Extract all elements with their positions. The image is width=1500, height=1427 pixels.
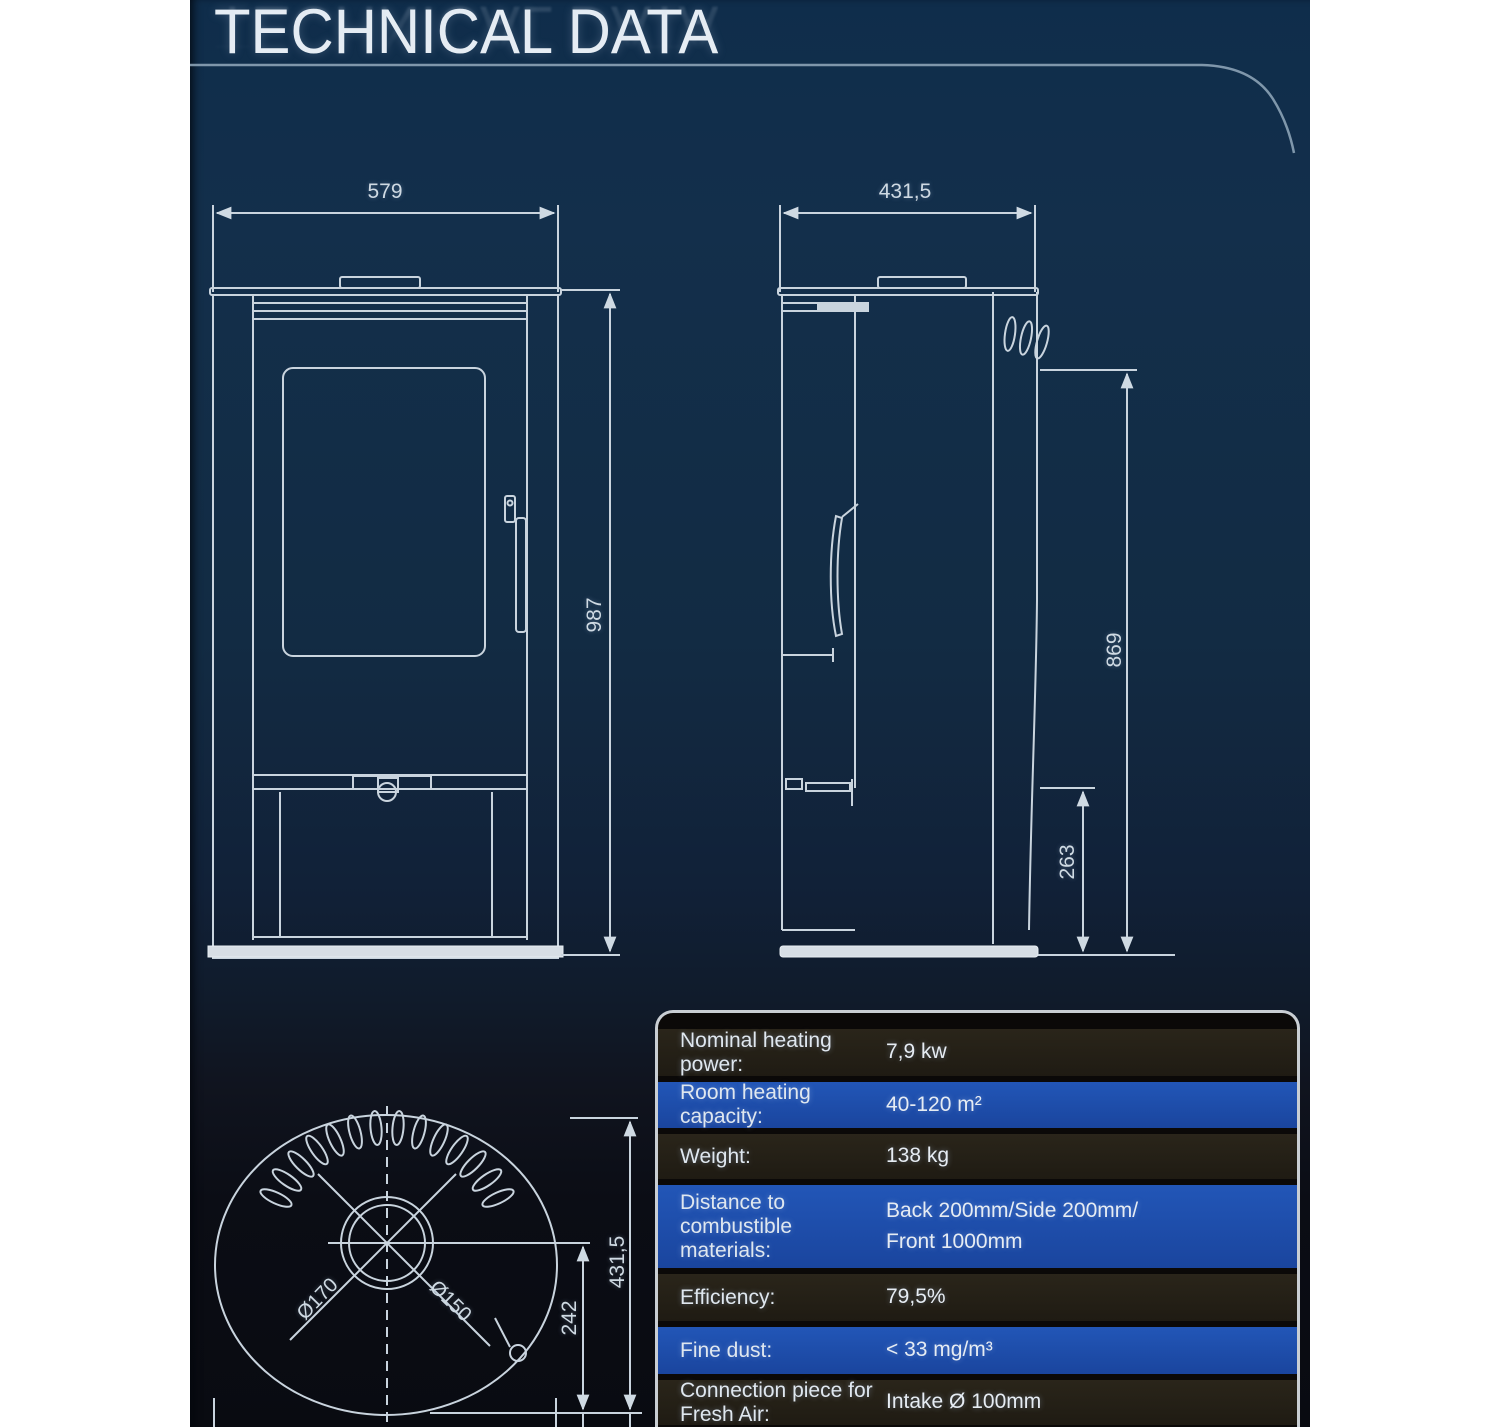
spec-value: < 33 mg/m³ <box>886 1335 1297 1365</box>
side-view <box>778 205 1175 957</box>
spec-label: Connection piece for Fresh Air: <box>658 1379 886 1427</box>
spec-label: Weight: <box>658 1145 886 1169</box>
dim-side-rear-height-label: 869 <box>1103 615 1127 685</box>
dim-front-width-label: 579 <box>320 180 450 204</box>
spec-value: Back 200mm/Side 200mm/ Front 1000mm <box>886 1196 1297 1257</box>
spec-label: Nominal heating power: <box>658 1029 886 1077</box>
header-underline <box>190 65 1294 153</box>
table-row: Connection piece for Fresh Air: Intake Ø… <box>658 1380 1297 1425</box>
table-row: Room heating capacity: 40-120 m² <box>658 1082 1297 1128</box>
table-row: Distance to combustible materials: Back … <box>658 1185 1297 1268</box>
table-row: Fine dust: < 33 mg/m³ <box>658 1327 1297 1374</box>
spec-value: Intake Ø 100mm <box>886 1387 1297 1417</box>
dim-side-base-height-label: 263 <box>1056 827 1080 897</box>
spec-value: 79,5% <box>886 1282 1297 1312</box>
spec-table: Nominal heating power: 7,9 kw Room heati… <box>655 1010 1300 1427</box>
table-row: Weight: 138 kg <box>658 1134 1297 1179</box>
spec-label: Room heating capacity: <box>658 1081 886 1129</box>
table-row: Nominal heating power: 7,9 kw <box>658 1029 1297 1076</box>
front-view <box>208 205 620 958</box>
dim-front-height-label: 987 <box>583 580 607 650</box>
spec-value: 40-120 m² <box>886 1090 1297 1120</box>
spec-label: Efficiency: <box>658 1286 886 1310</box>
dim-side-depth-label: 431,5 <box>840 180 970 204</box>
dim-top-flue-offset-label: 242 <box>558 1283 582 1353</box>
dim-top-depth-label: 431,5 <box>606 1227 630 1297</box>
spec-label: Distance to combustible materials: <box>658 1191 886 1263</box>
table-row: Efficiency: 79,5% <box>658 1274 1297 1321</box>
brochure-page: TECHNICAL DATA TECHNICAL DATA <box>190 0 1310 1427</box>
spec-value: 138 kg <box>886 1141 1297 1171</box>
spec-value: 7,9 kw <box>886 1037 1297 1067</box>
spec-label: Fine dust: <box>658 1339 886 1363</box>
